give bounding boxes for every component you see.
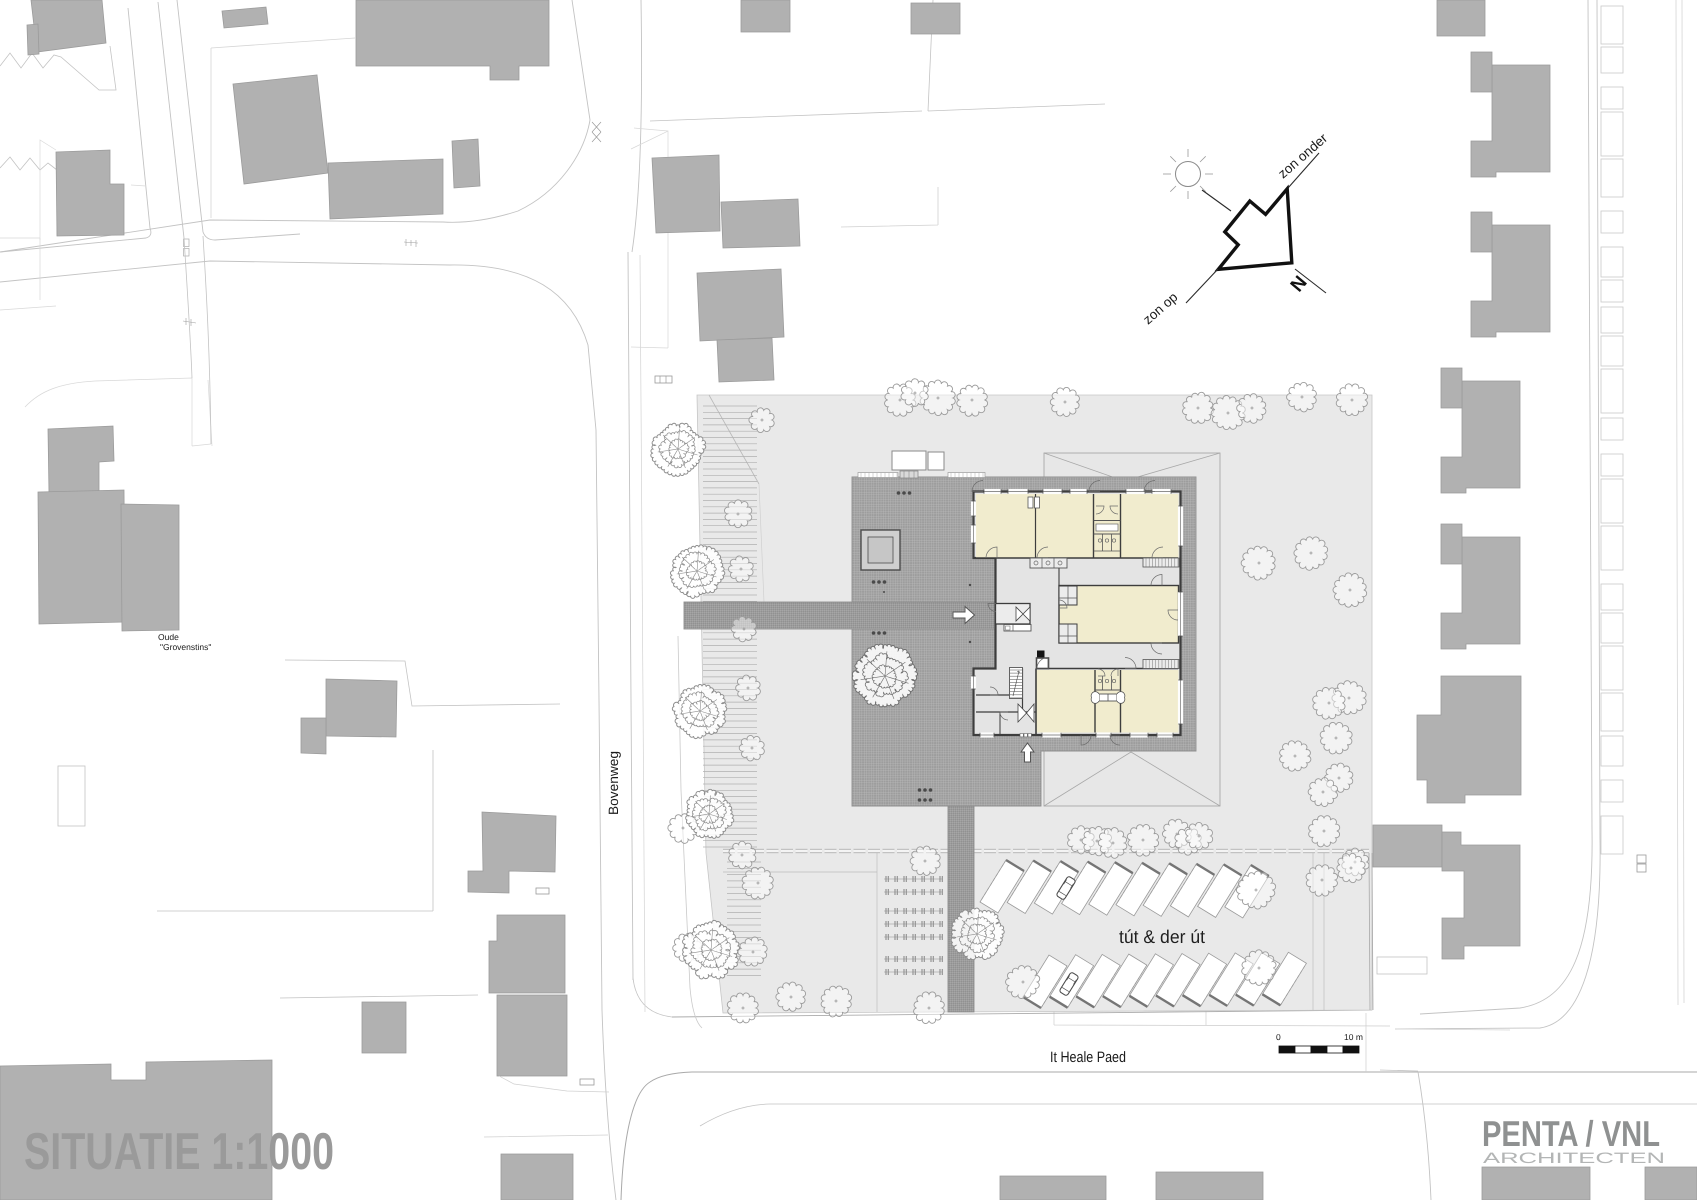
svg-text:0: 0	[1276, 1032, 1281, 1042]
svg-text:Oude: Oude	[158, 632, 179, 642]
svg-text:It Heale Paed: It Heale Paed	[1050, 1049, 1126, 1066]
svg-text:Bovenweg: Bovenweg	[606, 751, 621, 815]
svg-text:SITUATIE 1:1000: SITUATIE 1:1000	[24, 1123, 334, 1181]
svg-text:10 m: 10 m	[1344, 1032, 1363, 1042]
svg-text:ARCHITECTEN: ARCHITECTEN	[1483, 1150, 1665, 1167]
svg-text:PENTA / VNL: PENTA / VNL	[1482, 1113, 1660, 1154]
svg-text:tút & der út: tút & der út	[1119, 926, 1205, 947]
svg-text:"Grovenstins": "Grovenstins"	[160, 642, 211, 652]
